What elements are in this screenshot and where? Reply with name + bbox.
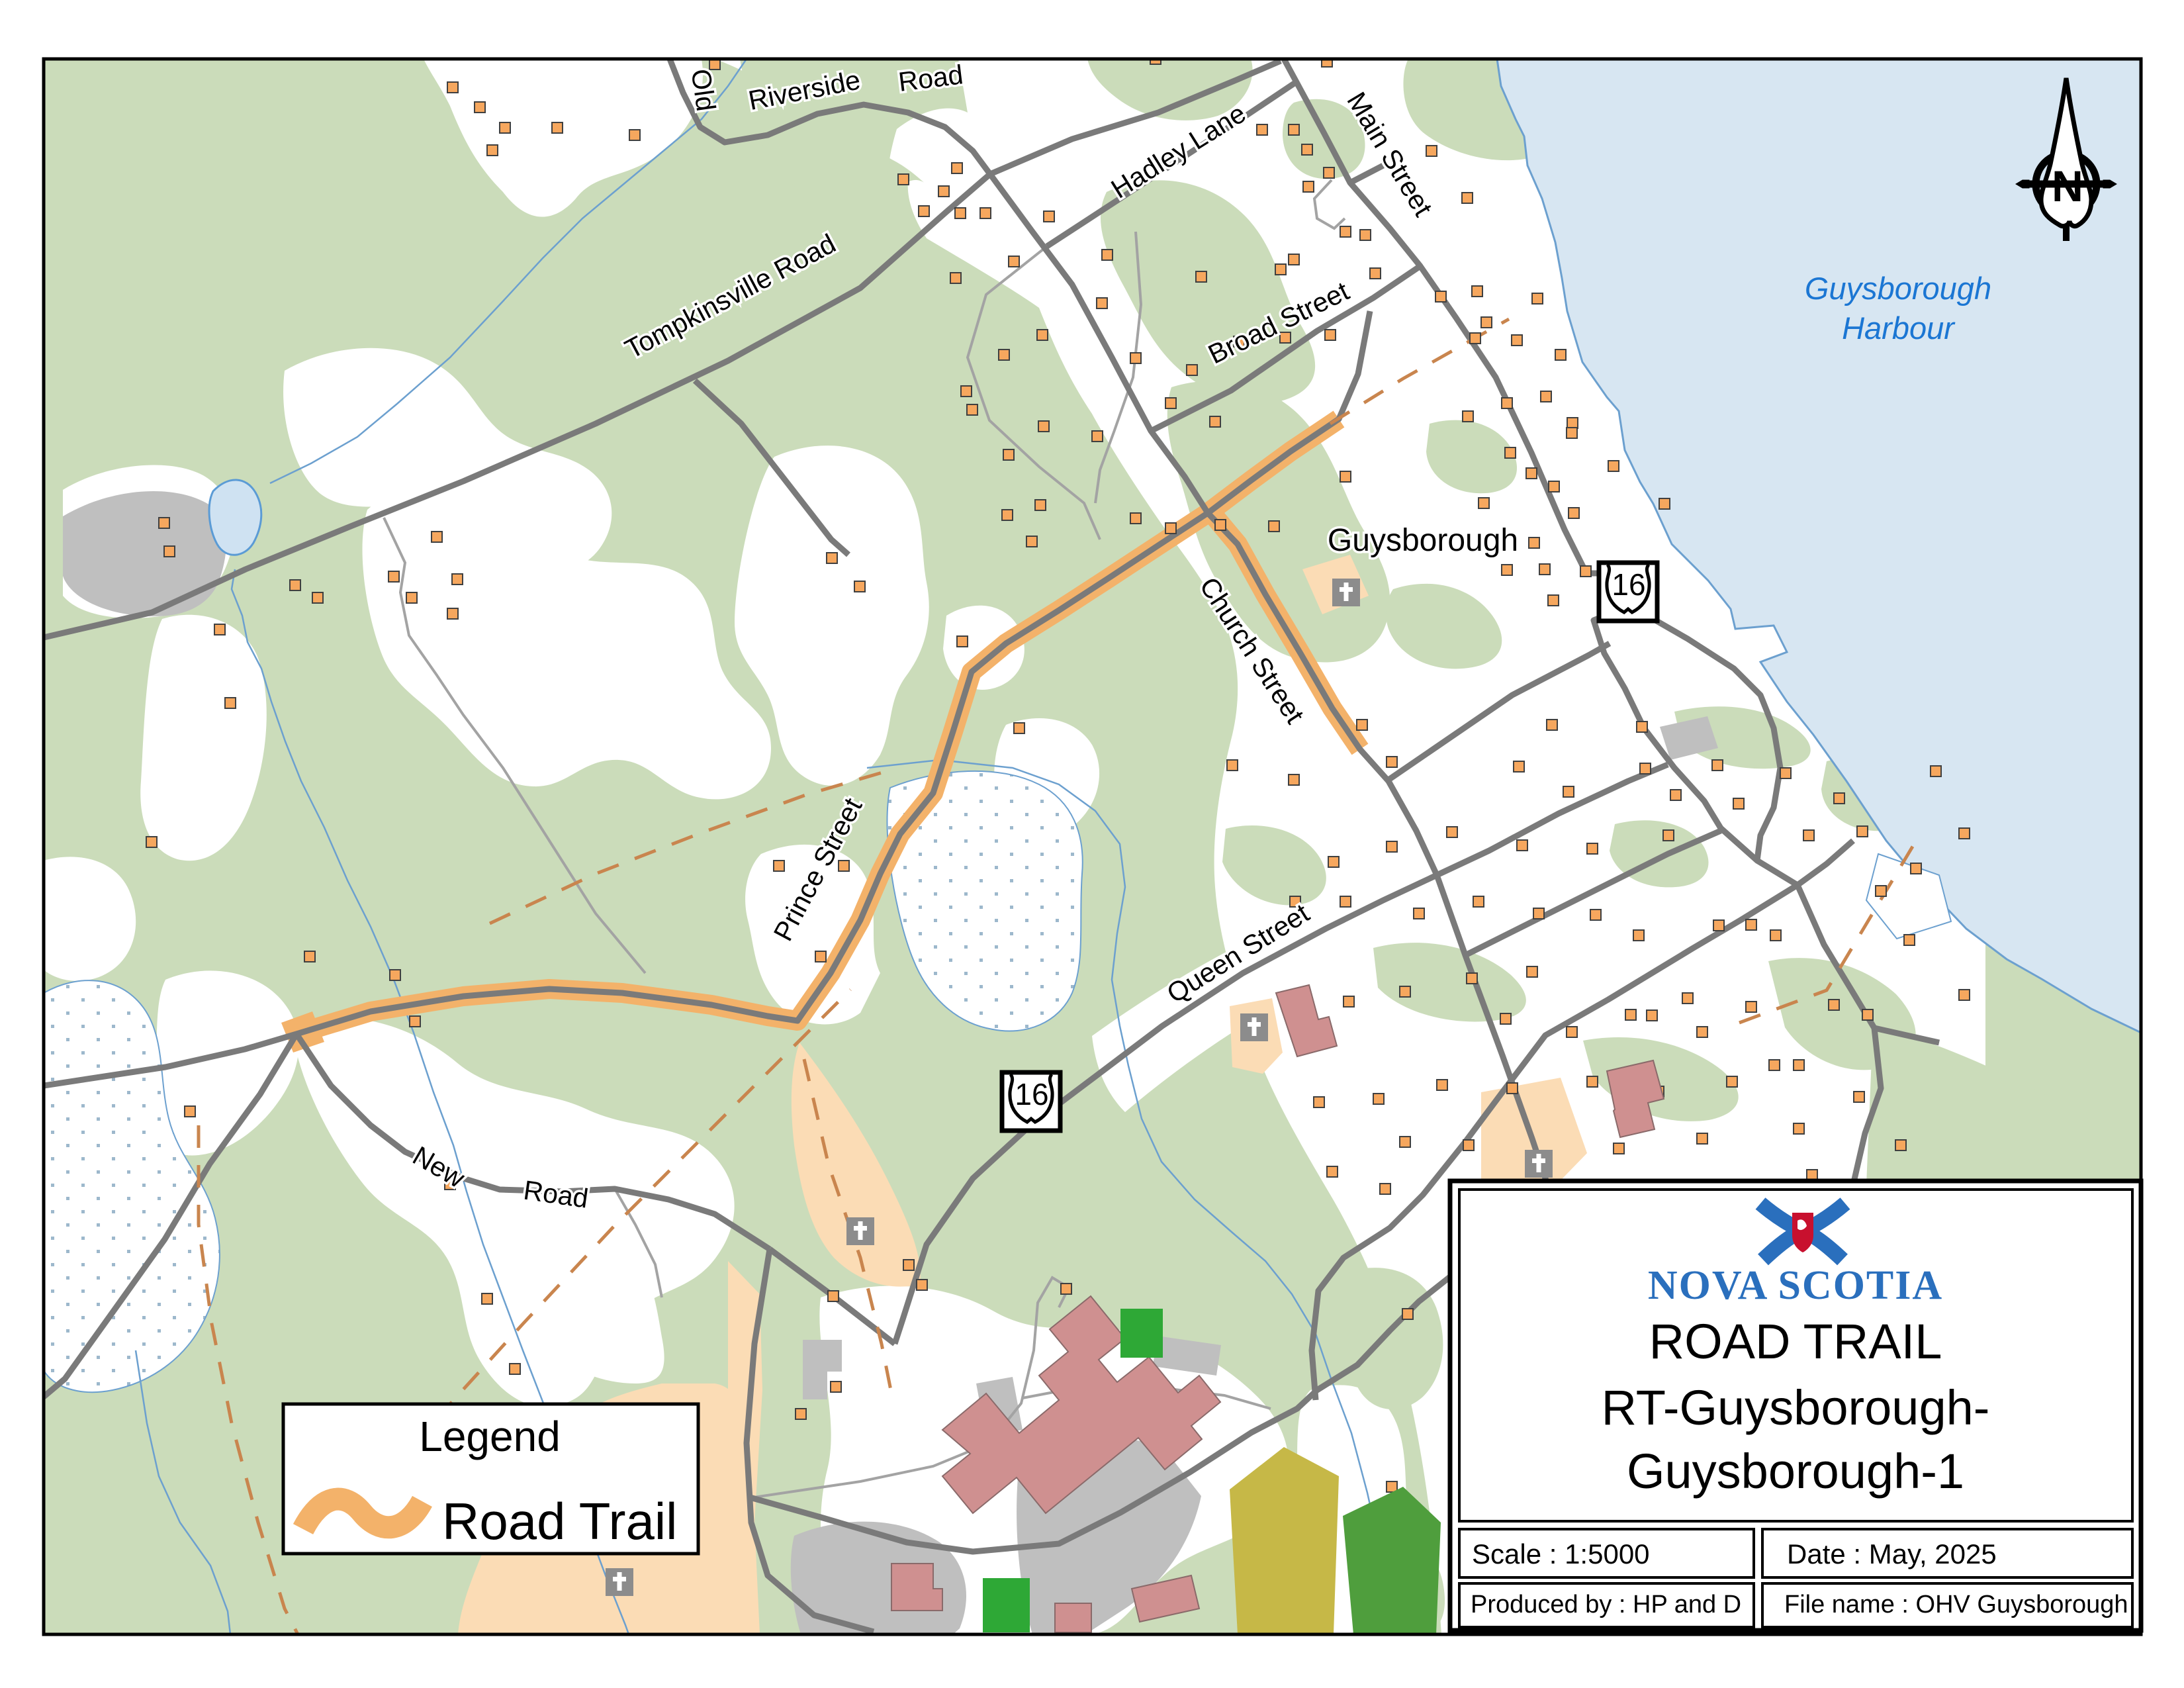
svg-text:RT-Guysborough-: RT-Guysborough- — [1602, 1380, 1990, 1435]
svg-text:Date : May, 2025: Date : May, 2025 — [1787, 1538, 1997, 1570]
svg-text:NOVA SCOTIA: NOVA SCOTIA — [1648, 1263, 1943, 1308]
svg-text:N: N — [2052, 162, 2083, 211]
svg-text:Legend: Legend — [419, 1413, 561, 1460]
svg-text:Guysborough: Guysborough — [1328, 523, 1518, 558]
svg-text:Guysborough: Guysborough — [1805, 271, 1991, 306]
svg-text:File name : OHV Guysborough: File name : OHV Guysborough — [1784, 1591, 2128, 1618]
svg-text:Scale : 1:5000: Scale : 1:5000 — [1472, 1538, 1650, 1570]
svg-text:ROAD TRAIL: ROAD TRAIL — [1649, 1314, 1942, 1369]
svg-text:Old: Old — [686, 67, 721, 113]
svg-text:16: 16 — [1015, 1077, 1048, 1111]
svg-text:16: 16 — [1612, 567, 1645, 602]
svg-text:Guysborough-1: Guysborough-1 — [1627, 1444, 1964, 1499]
svg-text:Produced by : HP and D: Produced by : HP and D — [1471, 1591, 1741, 1618]
svg-text:Harbour: Harbour — [1842, 310, 1956, 346]
svg-text:Road Trail: Road Trail — [442, 1492, 678, 1550]
